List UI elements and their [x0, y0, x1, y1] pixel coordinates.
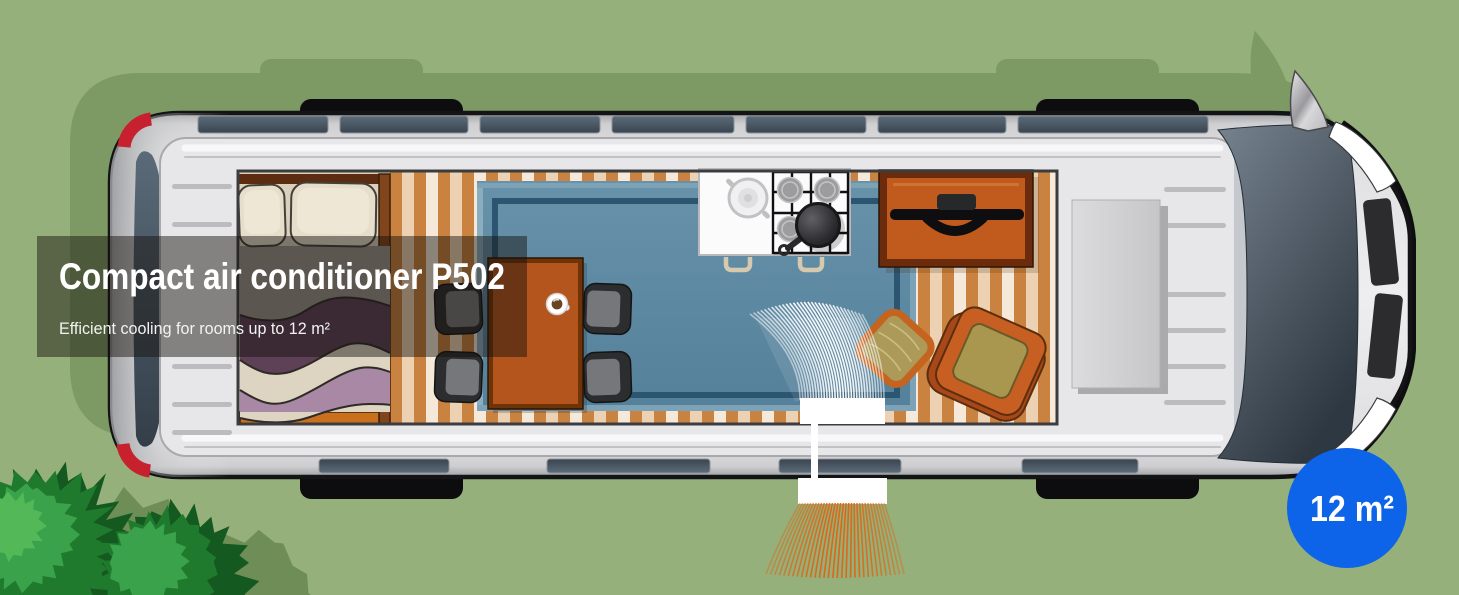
svg-text:Efficient cooling for rooms up: Efficient cooling for rooms up to 12 m²: [59, 319, 330, 338]
svg-text:Compact air conditioner P502: Compact air conditioner P502: [59, 256, 505, 297]
svg-text:12 m²: 12 m²: [1310, 488, 1394, 529]
